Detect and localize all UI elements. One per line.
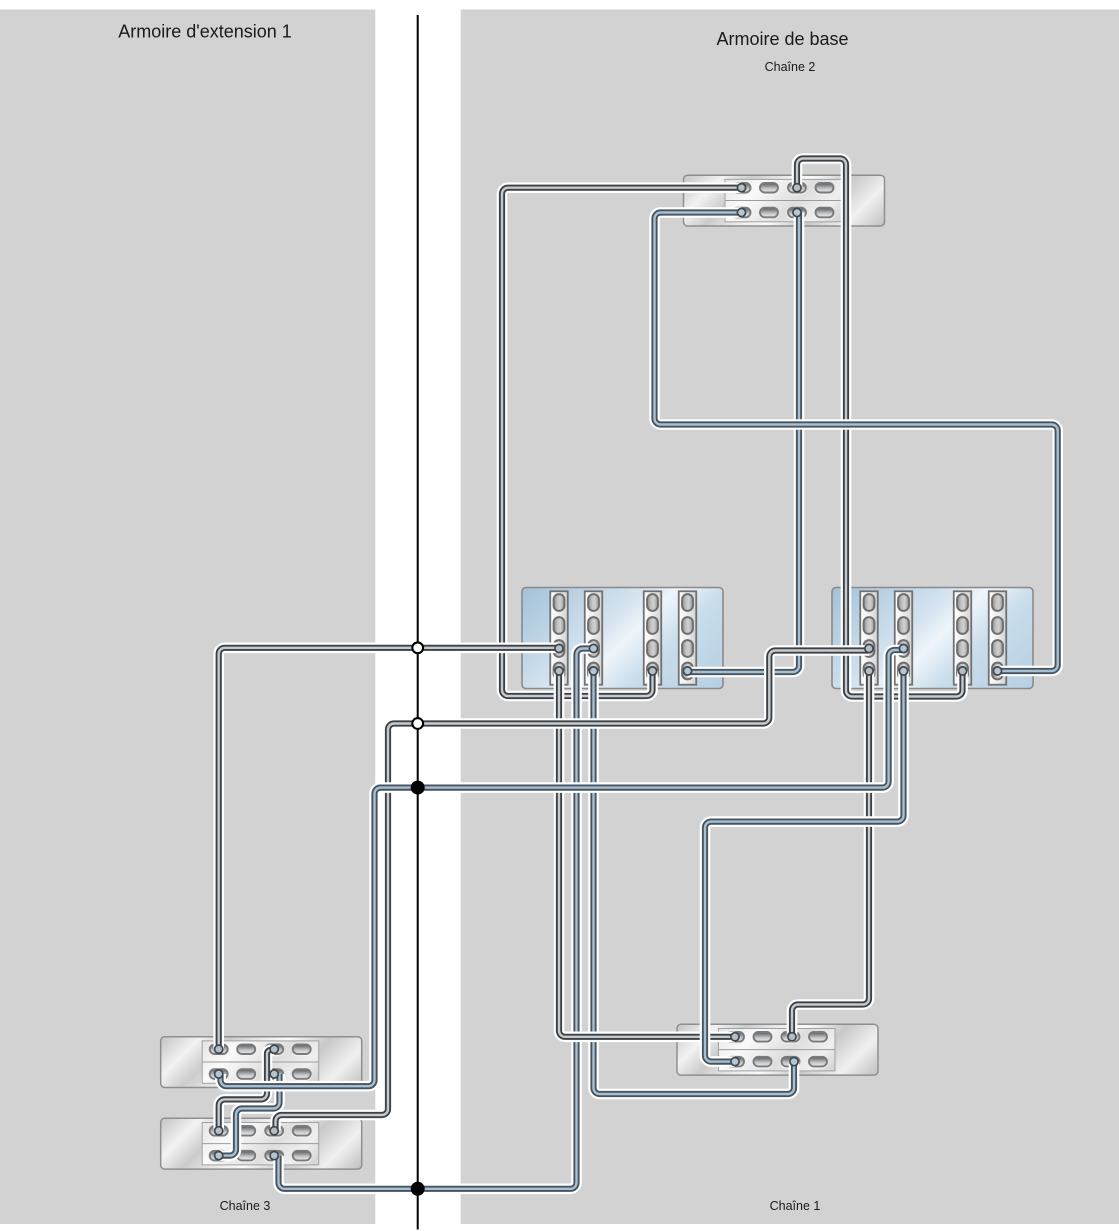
svg-text:Armoire d'extension 1: Armoire d'extension 1: [118, 22, 292, 42]
svg-text:Armoire de base: Armoire de base: [716, 29, 848, 49]
svg-text:Chaîne 1: Chaîne 1: [770, 1199, 821, 1213]
svg-text:Chaîne 3: Chaîne 3: [220, 1199, 271, 1213]
svg-text:Chaîne 2: Chaîne 2: [765, 60, 816, 74]
